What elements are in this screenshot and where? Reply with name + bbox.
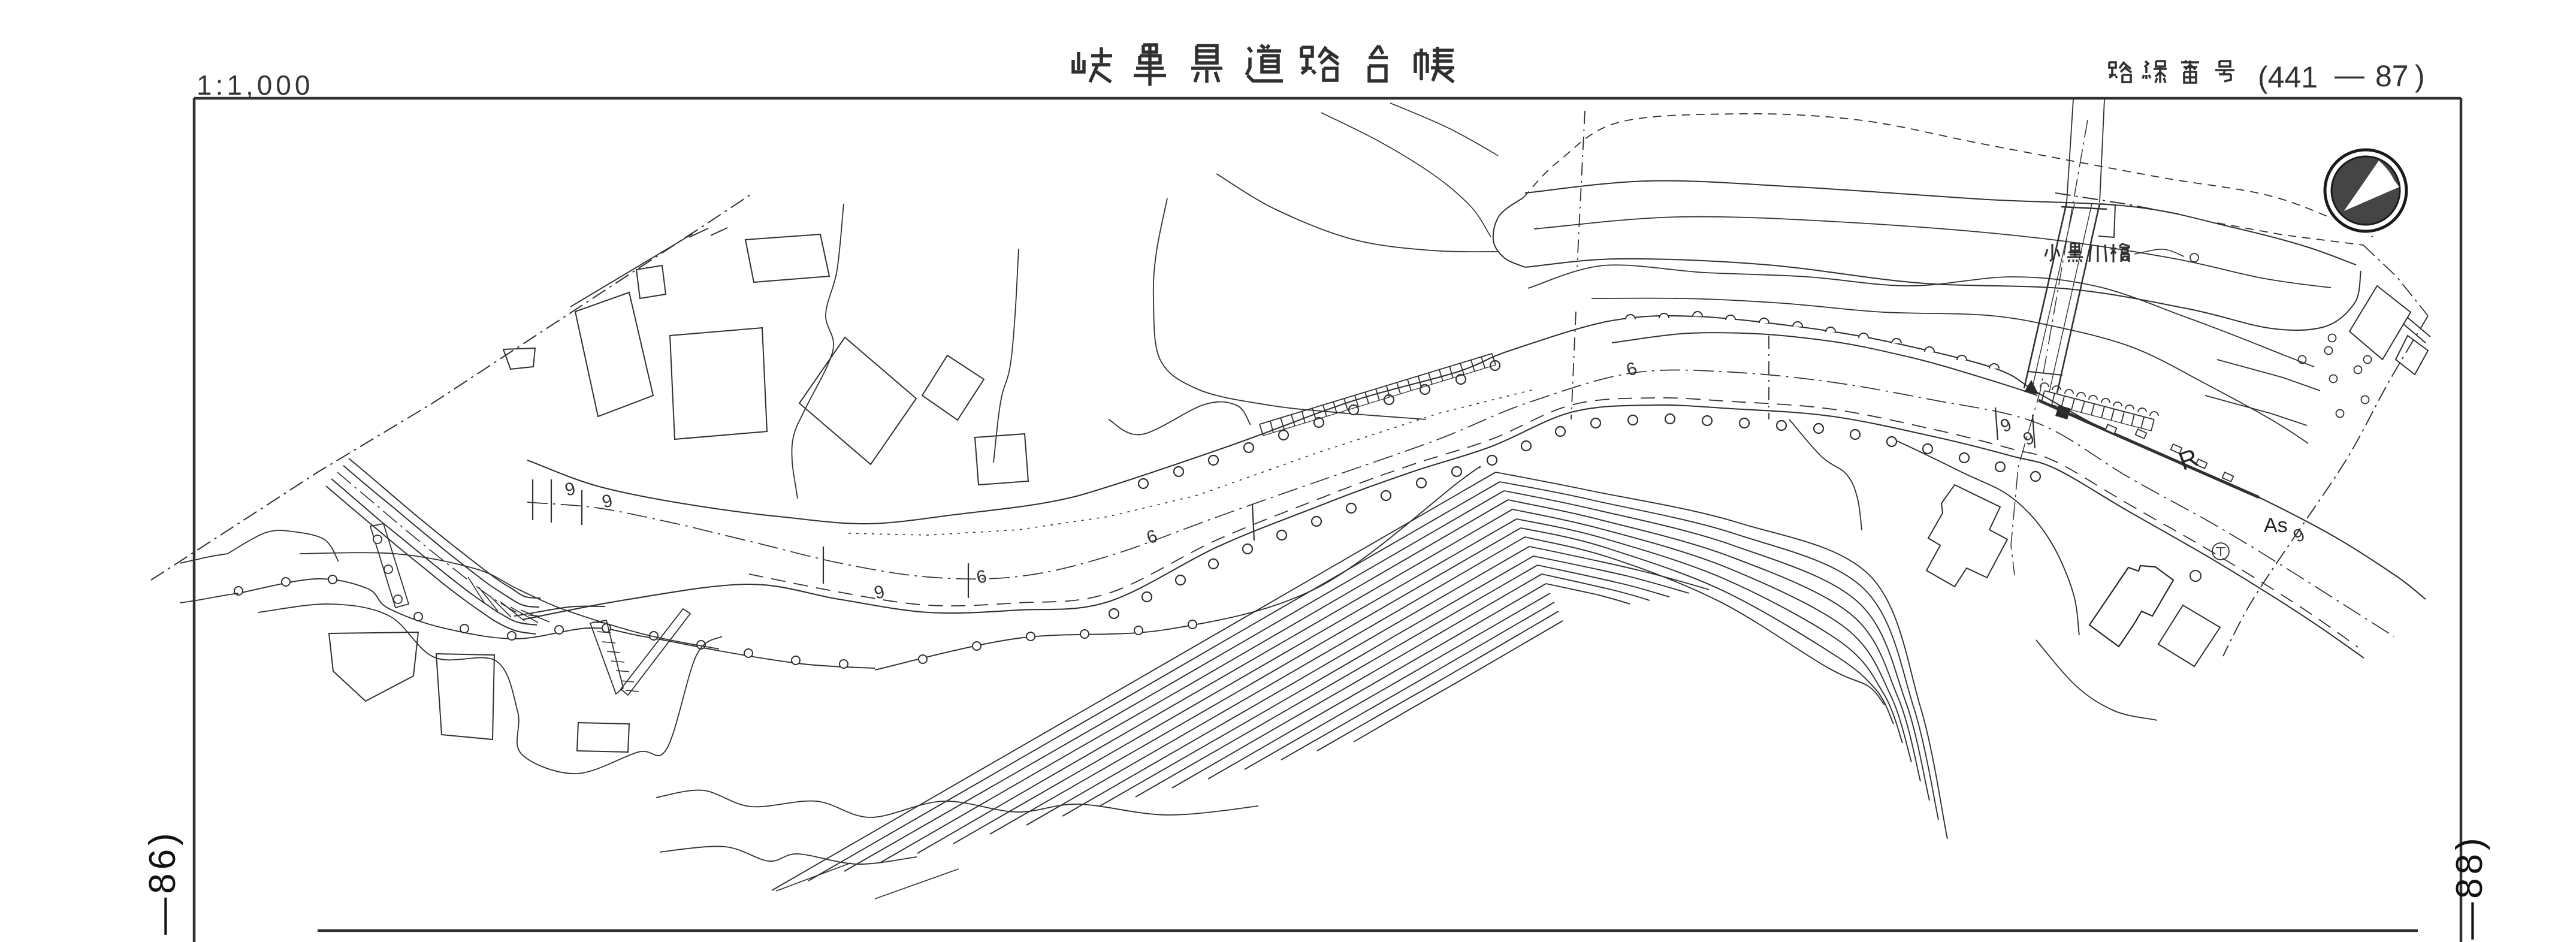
svg-text:(441: (441 [2258,61,2318,94]
svg-text:—88): —88) [2449,834,2490,940]
svg-text:1:1,000: 1:1,000 [197,70,313,101]
svg-text:—: — [2335,58,2364,92]
svg-text:87: 87 [2375,59,2409,93]
svg-text:—86): —86) [142,829,183,935]
svg-text:As: As [2264,514,2288,537]
svg-text:): ) [2415,59,2425,93]
